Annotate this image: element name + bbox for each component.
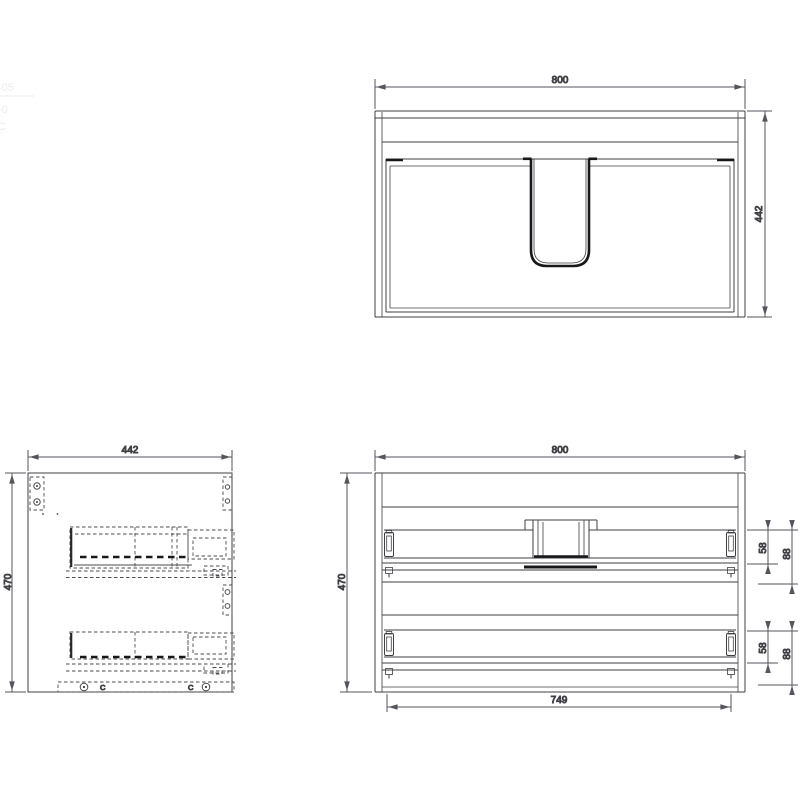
rear-dim-width-label: 800 (552, 445, 569, 456)
slide-bracket (204, 566, 228, 575)
lower-rail-right-bracket (727, 632, 736, 679)
side-bottom-strip (58, 682, 234, 692)
siphon-cutout (524, 520, 597, 567)
rear-dim-height-label: 470 (337, 573, 348, 590)
screw-hole-icon (225, 604, 230, 609)
rear-upper-rail (384, 530, 736, 558)
lower-rail-offset-label: 88 (782, 648, 793, 660)
rear-cabinet-outline (375, 473, 745, 692)
side-upper-drawer-hidden (66, 527, 236, 578)
drawing-canvas: -05 -0 C 800 442 (0, 0, 800, 800)
screw-hole-icon (225, 499, 229, 503)
edge-fragment-group: -05 -0 C (0, 82, 34, 133)
slide-bracket (204, 664, 228, 673)
side-dim-width-label: 442 (122, 445, 139, 456)
lower-rail-left-bracket (385, 632, 394, 679)
side-reference-dots (42, 513, 58, 515)
plan-dim-width-label: 800 (552, 75, 569, 86)
edge-fragment-2: -0 (0, 104, 8, 116)
side-hanger-screws-mid-right (223, 585, 232, 615)
rear-dim-inner-width-label: 749 (551, 695, 568, 706)
side-hanger-screws-top-right (223, 477, 232, 510)
side-marker-left: C (100, 683, 106, 692)
side-marker-right: C (188, 683, 194, 692)
screw-hole-icon (225, 590, 230, 595)
drawer-slide-block (193, 538, 226, 556)
side-lower-drawer-hidden (66, 632, 236, 674)
rear-lower-rail (384, 630, 736, 657)
lower-rail-height-label: 58 (758, 642, 769, 654)
side-hanger-screws-top-left (30, 477, 44, 510)
upper-rail-height-label: 58 (758, 542, 769, 554)
side-view: 442 470 (3, 445, 236, 692)
drawer-slide-block (193, 637, 226, 654)
technical-drawing-page: -05 -0 C 800 442 (0, 0, 800, 800)
edge-fragment-3: C (0, 121, 6, 133)
plan-view: 800 442 (375, 75, 772, 317)
side-dim-height-label: 470 (3, 573, 14, 590)
sink-drain-cutout (531, 159, 589, 267)
upper-rail-offset-label: 88 (782, 548, 793, 560)
plan-cabinet-outline (375, 111, 745, 317)
edge-fragment-1: -05 (0, 82, 14, 94)
plan-basin-outline (386, 159, 734, 312)
rear-view: 800 470 749 (337, 445, 798, 712)
screw-hole-icon (225, 485, 229, 489)
plan-dim-depth-label: 442 (754, 205, 765, 222)
